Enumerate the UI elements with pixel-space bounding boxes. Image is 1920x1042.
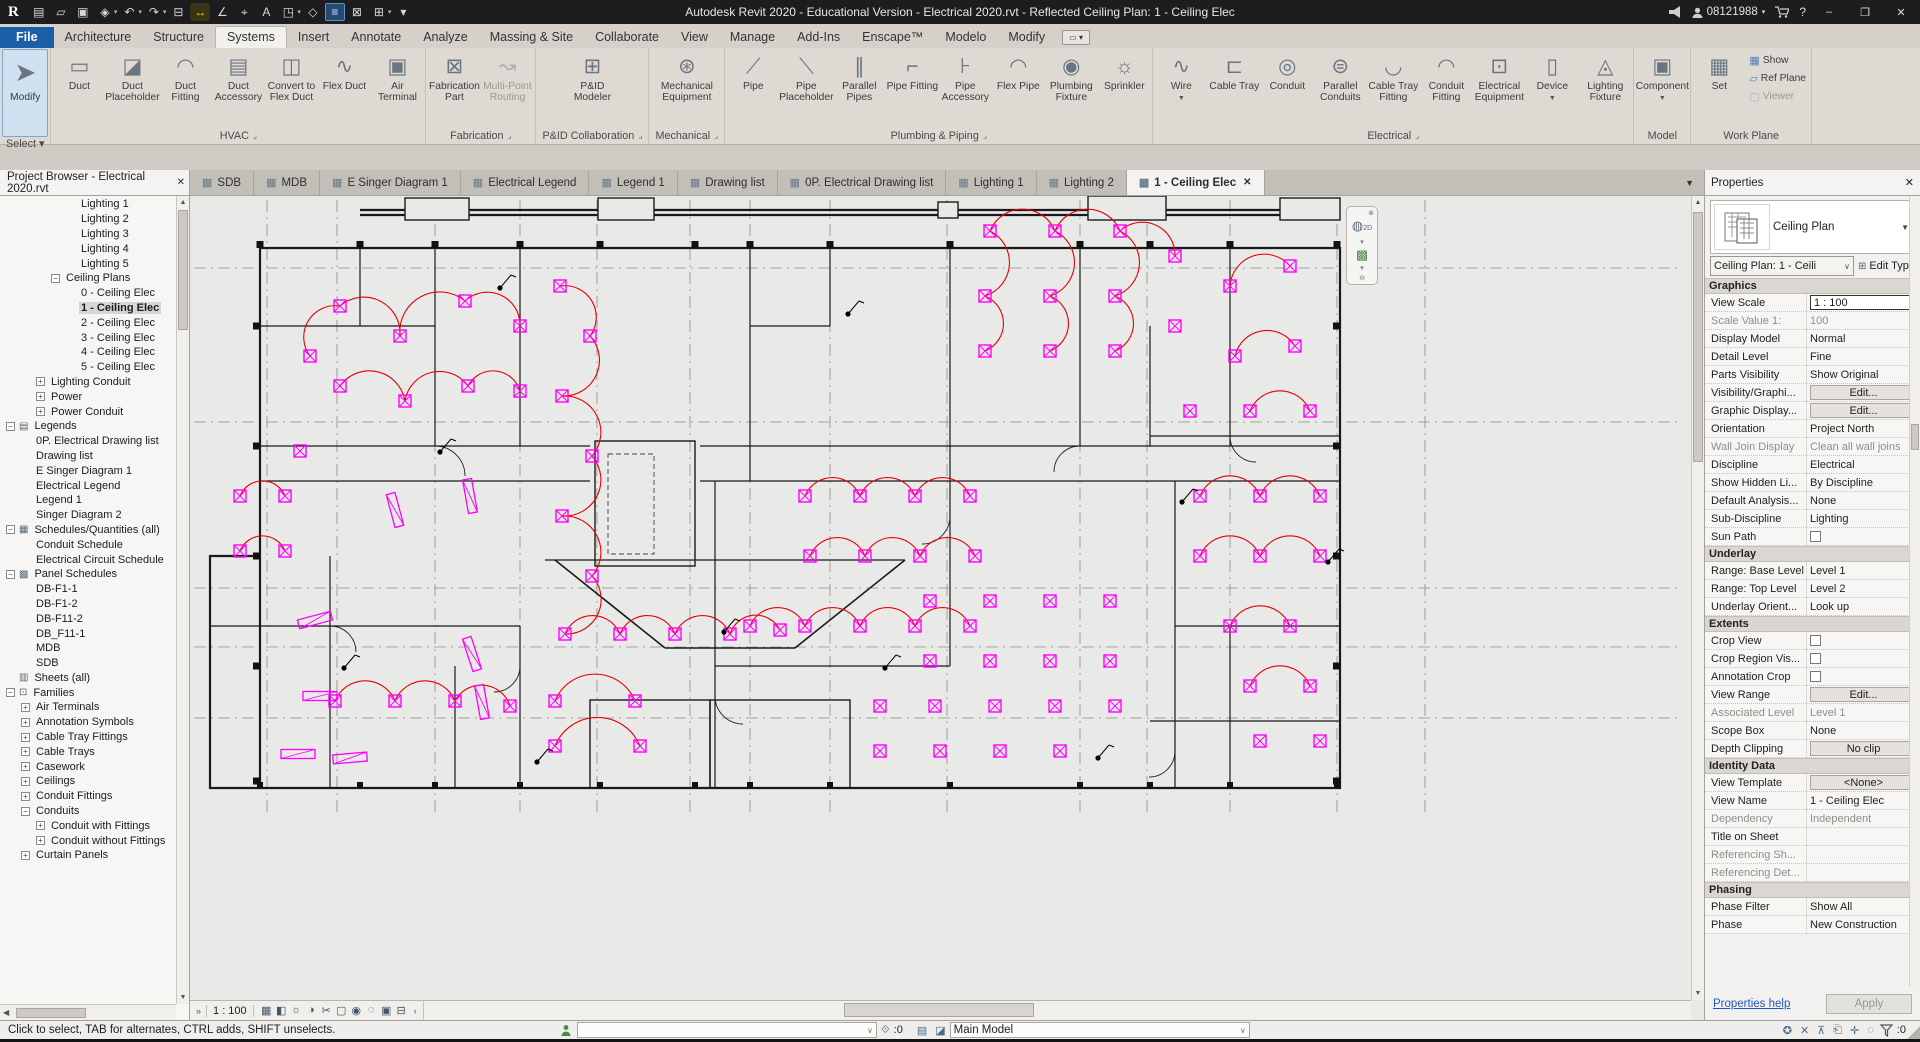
air-terminal-button[interactable]: ▣Air Terminal — [371, 49, 423, 125]
dialog-launcher-icon[interactable]: ⌟ — [508, 130, 512, 141]
render-icon-dropdown[interactable]: ▾ — [114, 8, 118, 16]
property-row-annotation-crop[interactable]: Annotation Crop — [1705, 668, 1920, 686]
duct-button[interactable]: ▭Duct — [53, 49, 105, 125]
ribbon-group-model: ▣Component▼Model — [1634, 48, 1691, 144]
tree-item-curtain-panels[interactable]: +Curtain Panels — [0, 848, 176, 863]
switch-windows-icon[interactable]: ⊞ — [369, 3, 389, 21]
tree-item-mdb[interactable]: MDB — [0, 641, 176, 656]
shadows-icon[interactable]: ◑ — [304, 1004, 319, 1017]
device-button[interactable]: ▯Device▼ — [1526, 49, 1578, 125]
tree-item-panel-schedules[interactable]: −▩Panel Schedules — [0, 567, 176, 582]
expand-icon[interactable]: + — [21, 762, 30, 771]
default-3d-view-icon[interactable]: ◳ — [278, 3, 298, 21]
collapse-icon[interactable]: − — [51, 274, 60, 283]
pipe-icon: ⟋ — [738, 51, 768, 81]
flex-pipe-icon: ◠ — [1003, 51, 1033, 81]
pipe-placeholder-button[interactable]: ⟍Pipe Placeholder — [780, 49, 832, 125]
tree-item-4-ceiling-elec[interactable]: 4 - Ceiling Elec — [0, 345, 176, 360]
plumbing-fixture-button[interactable]: ◉Plumbing Fixture — [1045, 49, 1097, 125]
value-button[interactable]: <None> — [1810, 775, 1917, 790]
property-row-title-on-sheet[interactable]: Title on Sheet — [1705, 828, 1920, 846]
exchange-cart-icon[interactable] — [1775, 6, 1789, 18]
project-browser-close-icon[interactable]: ✕ — [177, 177, 185, 188]
view-tab-e-singer-diagram-1[interactable]: ▦E Singer Diagram 1 — [320, 170, 461, 195]
expand-icon[interactable]: + — [21, 703, 30, 712]
ribbon-group-label: Mechanical — [655, 130, 710, 142]
revit-logo[interactable]: R — [0, 4, 25, 21]
print-icon[interactable]: ⊟ — [168, 3, 188, 21]
project-browser-vscrollbar[interactable]: ▲ ▼ — [176, 196, 189, 1004]
tree-item-db-f1-2[interactable]: DB-F1-2 — [0, 597, 176, 612]
tree-item-cable-tray-fittings[interactable]: +Cable Tray Fittings — [0, 730, 176, 745]
tree-item-conduit-schedule[interactable]: Conduit Schedule — [0, 537, 176, 552]
tree-item-2-ceiling-elec[interactable]: 2 - Ceiling Elec — [0, 315, 176, 330]
expand-icon[interactable]: + — [21, 792, 30, 801]
default-3d-view-icon-dropdown[interactable]: ▾ — [297, 8, 301, 16]
tree-item-db-f1-1[interactable]: DB-F1-1 — [0, 582, 176, 597]
view-tab-1-ceiling-elec[interactable]: ▦1 - Ceiling Elec✕ — [1127, 170, 1265, 195]
tree-item-e-singer-diagram-1[interactable]: E Singer Diagram 1 — [0, 463, 176, 478]
cable-tray-button[interactable]: ⊏Cable Tray — [1208, 49, 1260, 125]
properties-help-link[interactable]: Properties help — [1713, 998, 1790, 1010]
property-row-depth-clipping[interactable]: Depth ClippingNo clip — [1705, 740, 1920, 758]
ribbon-group-label: Electrical — [1367, 130, 1411, 142]
property-row-referencing-sh[interactable]: Referencing Sh... — [1705, 846, 1920, 864]
pipe-button[interactable]: ⟋Pipe — [727, 49, 779, 125]
parallel-pipes-button[interactable]: ∥Parallel Pipes — [833, 49, 885, 125]
ribbon-gap — [0, 145, 1920, 170]
properties-rows: Graphics«View Scale1 : 100Scale Value 1:… — [1705, 278, 1920, 934]
maximize-button[interactable]: ❐ — [1852, 6, 1878, 19]
constraints-icon[interactable]: ⊟ — [394, 1004, 409, 1017]
editable-count: :0 — [894, 1024, 903, 1036]
background-process-icon[interactable]: ◌ — [1863, 1024, 1878, 1036]
steering-wheel-caret[interactable]: ▾ — [1360, 238, 1364, 246]
navbar-collapse-icon[interactable]: ⊖ — [1359, 274, 1365, 282]
property-row-graphic-display[interactable]: Graphic Display...Edit... — [1705, 402, 1920, 420]
tree-item-electrical-legend[interactable]: Electrical Legend — [0, 478, 176, 493]
expand-icon[interactable]: » — [196, 1006, 201, 1016]
ribbon-tab-systems[interactable]: Systems — [215, 26, 287, 48]
dialog-launcher-icon[interactable]: ⌟ — [714, 130, 718, 141]
canvas-hscrollbar[interactable] — [423, 1001, 1691, 1020]
zoom-caret[interactable]: ▾ — [1360, 264, 1364, 272]
thin-lines-icon[interactable]: ≡ — [325, 3, 345, 21]
view-scale-control[interactable]: 1 : 100 — [206, 1005, 254, 1017]
conduit-button[interactable]: ◎Conduit — [1261, 49, 1313, 125]
steering-wheel-icon[interactable]: ◍2D — [1352, 219, 1372, 236]
tree-item-schedules-quantities-all-[interactable]: −▦Schedules/Quantities (all) — [0, 523, 176, 538]
expand-icon[interactable]: + — [21, 747, 30, 756]
tree-item-power-conduit[interactable]: +Power Conduit — [0, 404, 176, 419]
set-work-plane-icon: ▦ — [1704, 51, 1734, 81]
tree-item-5-ceiling-elec[interactable]: 5 - Ceiling Elec — [0, 360, 176, 375]
close-button[interactable]: ✕ — [1888, 6, 1914, 19]
section-icon[interactable]: ◇ — [303, 3, 323, 21]
schedule-icon: ▦ — [19, 524, 28, 535]
status-bar: Click to select, TAB for alternates, CTR… — [0, 1020, 1920, 1039]
ribbon: ➤ModifySelect ▾▭Duct◪Duct Placeholder◠Du… — [0, 48, 1920, 145]
tree-item-cable-trays[interactable]: +Cable Trays — [0, 744, 176, 759]
tree-item-lighting-5[interactable]: Lighting 5 — [0, 256, 176, 271]
property-row-view-scale[interactable]: View Scale1 : 100 — [1705, 294, 1920, 312]
flex-pipe-button[interactable]: ◠Flex Pipe — [992, 49, 1044, 125]
reveal-hidden-icon[interactable]: ◌ — [364, 1004, 379, 1017]
expand-icon[interactable]: + — [21, 718, 30, 727]
canvas-vscrollbar[interactable]: ▲ ▼ — [1691, 196, 1704, 1000]
property-row-display-model[interactable]: Display ModelNormal — [1705, 330, 1920, 348]
ribbon-tab-collaborate[interactable]: Collaborate — [584, 27, 670, 48]
property-row-crop-region-vis[interactable]: Crop Region Vis... — [1705, 650, 1920, 668]
detail-level-icon[interactable]: ▦ — [259, 1004, 274, 1017]
view-tab-legend-1[interactable]: ▦Legend 1 — [589, 170, 677, 195]
section-header-identity-data[interactable]: Identity Data« — [1705, 758, 1920, 774]
tree-item-conduit-without-fittings[interactable]: +Conduit without Fittings — [0, 833, 176, 848]
expand-icon[interactable]: + — [21, 733, 30, 742]
tree-item-ceilings[interactable]: +Ceilings — [0, 774, 176, 789]
redo-icon[interactable]: ↷ — [144, 3, 164, 21]
expand-icon[interactable]: + — [36, 836, 45, 845]
wire-button[interactable]: ∿Wire▼ — [1155, 49, 1207, 125]
render-icon[interactable]: ◈ — [95, 3, 115, 21]
value-button[interactable]: Edit... — [1810, 687, 1917, 702]
save-icon[interactable]: ▣ — [73, 3, 93, 21]
undo-icon[interactable]: ↶ — [119, 3, 139, 21]
tree-item-lighting-3[interactable]: Lighting 3 — [0, 227, 176, 242]
tab-list-button[interactable]: ▼ — [1675, 170, 1704, 195]
ribbon-tab-file[interactable]: File — [0, 27, 54, 48]
set-work-plane-button[interactable]: ▦Set — [1693, 49, 1745, 125]
duct-placeholder-button[interactable]: ◪Duct Placeholder — [106, 49, 158, 125]
property-row-scale-value-1[interactable]: Scale Value 1:100 — [1705, 312, 1920, 330]
ribbon-group-p-id-collaboration: ⊞P&ID ModelerP&ID Collaboration⌟ — [536, 48, 649, 144]
ribbon-tab-modelo[interactable]: Modelo — [934, 27, 997, 48]
tree-item-0p-electrical-drawing-list[interactable]: 0P. Electrical Drawing list — [0, 434, 176, 449]
temporary-view-icon[interactable]: ▣ — [379, 1004, 394, 1017]
selection-filter-icon[interactable] — [1880, 1024, 1895, 1037]
component-icon: ▣ — [1647, 51, 1677, 81]
ribbon-tab-add-ins[interactable]: Add-Ins — [786, 27, 851, 48]
redo-icon-dropdown[interactable]: ▾ — [163, 8, 167, 16]
tree-item-singer-diagram-2[interactable]: Singer Diagram 2 — [0, 508, 176, 523]
viewer-button[interactable]: ▢Viewer — [1746, 88, 1809, 105]
plumbing-fixture-icon: ◉ — [1056, 51, 1086, 81]
view-tab-drawing-list[interactable]: ▦Drawing list — [678, 170, 778, 195]
navbar-close-icon[interactable]: ⊗ — [1368, 209, 1377, 217]
open-icon[interactable]: ▱ — [51, 3, 71, 21]
sprinkler-button[interactable]: ☼Sprinkler — [1098, 49, 1150, 125]
property-row-underlay-orient[interactable]: Underlay Orient...Look up — [1705, 598, 1920, 616]
tree-item-legends[interactable]: −▤Legends — [0, 419, 176, 434]
tree-item-air-terminals[interactable]: +Air Terminals — [0, 700, 176, 715]
expand-icon[interactable]: + — [36, 392, 45, 401]
tree-item-power[interactable]: +Power — [0, 389, 176, 404]
tree-item-lighting-2[interactable]: Lighting 2 — [0, 212, 176, 227]
signin-user[interactable]: 08121988▾ — [1692, 6, 1766, 18]
property-row-visibility-graphi[interactable]: Visibility/Graphi...Edit... — [1705, 384, 1920, 402]
ribbon-group-fabrication: ⊠Fabrication Part↝Multi-Point RoutingFab… — [426, 48, 536, 144]
help-menu[interactable]: ? — [1799, 5, 1806, 19]
ribbon-tab-analyze[interactable]: Analyze — [412, 27, 478, 48]
property-row-default-analysis[interactable]: Default Analysis...None — [1705, 492, 1920, 510]
section-header-graphics[interactable]: Graphics« — [1705, 278, 1920, 294]
multi-point-routing-button[interactable]: ↝Multi-Point Routing — [481, 49, 533, 125]
section-header-extents[interactable]: Extents« — [1705, 616, 1920, 632]
project-browser-hscrollbar[interactable]: ◀ — [0, 1004, 176, 1020]
view-tab-bar: ▦SDB▦MDB▦E Singer Diagram 1▦Electrical L… — [190, 170, 1704, 195]
tree-item-3-ceiling-elec[interactable]: 3 - Ceiling Elec — [0, 330, 176, 345]
conduit-icon: ◎ — [1272, 51, 1302, 81]
ribbon-tab-architecture[interactable]: Architecture — [54, 27, 143, 48]
close-hidden-windows-icon[interactable]: ⊠ — [347, 3, 367, 21]
property-row-phase-filter[interactable]: Phase FilterShow All — [1705, 898, 1920, 916]
value-button[interactable]: Edit... — [1810, 403, 1917, 418]
dialog-launcher-icon[interactable]: ⌟ — [253, 130, 257, 141]
worksharing-display-icon[interactable]: ✪ — [1779, 1024, 1796, 1037]
view-tab-icon: ▦ — [473, 176, 483, 189]
properties-panel: Ceiling Plan ▼ Ceiling Plan: 1 - Ceili∨ … — [1704, 196, 1920, 1020]
lighting-fixture-button[interactable]: ◬Lighting Fixture — [1579, 49, 1631, 125]
value-input[interactable]: 1 : 100 — [1810, 295, 1917, 310]
ribbon-tab-view[interactable]: View — [670, 27, 719, 48]
pipe-fitting-button[interactable]: ⌐Pipe Fitting — [886, 49, 938, 125]
mechanical-equipment-button[interactable]: ⊛Mechanical Equipment — [661, 49, 713, 125]
property-row-dependency[interactable]: DependencyIndependent — [1705, 810, 1920, 828]
tree-item-drawing-list[interactable]: Drawing list — [0, 449, 176, 464]
expand-icon[interactable]: + — [36, 821, 45, 830]
tree-item-sdb[interactable]: SDB — [0, 656, 176, 671]
view-tab-icon: ▦ — [958, 176, 968, 189]
electrical-equipment-button[interactable]: ⊡Electrical Equipment — [1473, 49, 1525, 125]
wire-icon: ∿ — [1166, 51, 1196, 81]
property-row-range-base-level[interactable]: Range: Base LevelLevel 1 — [1705, 562, 1920, 580]
view-tab-icon: ▦ — [332, 176, 342, 189]
type-combo[interactable]: Ceiling Plan: 1 - Ceili∨ — [1710, 256, 1854, 276]
type-label: Ceiling Plan — [1773, 221, 1896, 233]
duct-fitting-icon: ◠ — [170, 51, 200, 81]
expand-icon[interactable]: + — [21, 851, 30, 860]
property-row-wall-join-display[interactable]: Wall Join DisplayClean all wall joins — [1705, 438, 1920, 456]
ribbon-group-plumbing-piping: ⟋Pipe⟍Pipe Placeholder∥Parallel Pipes⌐Pi… — [725, 48, 1153, 144]
status-right-icons: ✪✕⊼⎗✛◌ — [1779, 1024, 1878, 1037]
view-tab-close-icon[interactable]: ✕ — [1243, 177, 1251, 188]
flex-duct-icon: ∿ — [329, 51, 359, 81]
hide-isolate-icon[interactable]: ◉ — [349, 1004, 364, 1017]
fabrication-part-button[interactable]: ⊠Fabrication Part — [428, 49, 480, 125]
ref-plane-icon: ▱ — [1749, 72, 1757, 85]
property-row-show-hidden-li[interactable]: Show Hidden Li...By Discipline — [1705, 474, 1920, 492]
tree-item-lighting-4[interactable]: Lighting 4 — [0, 241, 176, 256]
apply-button[interactable]: Apply — [1826, 994, 1912, 1014]
expand-icon[interactable]: + — [36, 377, 45, 386]
value-checkbox[interactable] — [1810, 671, 1821, 682]
view-tab-lighting-1[interactable]: ▦Lighting 1 — [946, 170, 1036, 195]
minimize-button[interactable]: – — [1816, 6, 1842, 18]
sun-path-icon[interactable]: ☼ — [289, 1004, 304, 1017]
section-header-underlay[interactable]: Underlay« — [1705, 546, 1920, 562]
pipe-accessory-button[interactable]: ⊦Pipe Accessory — [939, 49, 991, 125]
ribbon-tab-manage[interactable]: Manage — [719, 27, 786, 48]
tree-item-db-f11-2[interactable]: DB-F11-2 — [0, 611, 176, 626]
drawing-area[interactable]: ⊗ ◍2D ▾ ▩ ▾ ⊖ — [190, 196, 1691, 1000]
ribbon-minimize-button[interactable]: ▭ ▾ — [1062, 30, 1090, 45]
ref-plane-button[interactable]: ▱Ref Plane — [1746, 70, 1809, 87]
duct-placeholder-icon: ◪ — [117, 51, 147, 81]
property-row-orientation[interactable]: OrientationProject North — [1705, 420, 1920, 438]
reveal-constraints-icon[interactable]: ⎗ — [1829, 1024, 1846, 1037]
tree-item-1-ceiling-elec[interactable]: 1 - Ceiling Elec — [0, 301, 176, 316]
crop-view-icon[interactable]: ✂ — [319, 1004, 334, 1017]
exclude-options-icon[interactable]: ✕ — [1796, 1024, 1813, 1037]
editable-only-icon[interactable]: ⟐ — [877, 1024, 894, 1037]
modify-button[interactable]: ➤Modify — [2, 49, 48, 137]
tree-item-lighting-1[interactable]: Lighting 1 — [0, 197, 176, 212]
property-row-view-name[interactable]: View Name1 - Ceiling Elec — [1705, 792, 1920, 810]
ceiling-plan-drawing[interactable] — [190, 196, 1691, 1000]
cable-tray-fitting-button[interactable]: ◡Cable Tray Fitting — [1367, 49, 1419, 125]
collapse-icon[interactable]: ‹ — [414, 1006, 417, 1016]
duct-accessory-button[interactable]: ▤Duct Accessory — [212, 49, 264, 125]
view-tab-0p-electrical-drawing-list[interactable]: ▦0P. Electrical Drawing list — [778, 170, 947, 195]
property-row-range-top-level[interactable]: Range: Top LevelLevel 2 — [1705, 580, 1920, 598]
zoom-icon[interactable]: ▩ — [1356, 248, 1368, 262]
duct-fitting-button[interactable]: ◠Duct Fitting — [159, 49, 211, 125]
property-row-phase[interactable]: PhaseNew Construction — [1705, 916, 1920, 934]
value-button[interactable]: No clip — [1810, 741, 1917, 756]
dialog-launcher-icon[interactable]: ⌟ — [1415, 130, 1419, 141]
property-row-associated-level[interactable]: Associated LevelLevel 1 — [1705, 704, 1920, 722]
property-row-parts-visibility[interactable]: Parts VisibilityShow Original — [1705, 366, 1920, 384]
pin-icon[interactable]: ⊼ — [1813, 1024, 1829, 1037]
worksets-combo[interactable]: ∨ — [577, 1022, 877, 1038]
tree-item-annotation-symbols[interactable]: +Annotation Symbols — [0, 715, 176, 730]
tree-item-db-f11-1[interactable]: DB_F11-1 — [0, 626, 176, 641]
design-options-combo[interactable]: Main Model∨ — [950, 1022, 1250, 1038]
crop-region-icon[interactable]: ▢ — [334, 1004, 349, 1017]
component-button[interactable]: ▣Component▼ — [1636, 49, 1688, 125]
collapse-icon[interactable]: − — [6, 525, 15, 534]
dialog-launcher-icon[interactable]: ⌟ — [983, 130, 987, 141]
view-tab-icon: ▦ — [601, 176, 611, 189]
ribbon-tab-massing-site[interactable]: Massing & Site — [479, 27, 584, 48]
dialog-launcher-icon[interactable]: ⌟ — [638, 130, 642, 141]
property-row-sub-discipline[interactable]: Sub-DisciplineLighting — [1705, 510, 1920, 528]
collapse-icon[interactable]: − — [6, 570, 15, 579]
ribbon-tab-structure[interactable]: Structure — [142, 27, 215, 48]
tree-item-ceiling-plans[interactable]: −Ceiling Plans — [0, 271, 176, 286]
view-tab-electrical-legend[interactable]: ▦Electrical Legend — [461, 170, 590, 195]
value-button[interactable]: Edit... — [1810, 385, 1917, 400]
tree-item-conduit-fittings[interactable]: +Conduit Fittings — [0, 789, 176, 804]
tree-item-0-ceiling-elec[interactable]: 0 - Ceiling Elec — [0, 286, 176, 301]
tree-item-sheets-all-[interactable]: ▥Sheets (all) — [0, 671, 176, 686]
section-header-phasing[interactable]: Phasing« — [1705, 882, 1920, 898]
ribbon-tab-insert[interactable]: Insert — [287, 27, 340, 48]
view-control-bar: » 1 : 100 ▦◧☼◑✂▢◉◌▣⊟ ‹ — [190, 1004, 423, 1017]
pipe-accessory-icon: ⊦ — [950, 51, 980, 81]
properties-header[interactable]: Properties ✕ — [1704, 170, 1920, 195]
collapse-icon[interactable]: − — [21, 807, 30, 816]
tree-item-legend-1[interactable]: Legend 1 — [0, 493, 176, 508]
device-icon: ▯ — [1537, 51, 1567, 81]
cable-tray-fitting-icon: ◡ — [1378, 51, 1408, 81]
tree-item-conduits[interactable]: −Conduits — [0, 804, 176, 819]
press-drag-icon[interactable]: ✛ — [1846, 1024, 1863, 1037]
value-checkbox[interactable] — [1810, 531, 1821, 542]
expand-icon[interactable]: + — [36, 407, 45, 416]
value-checkbox[interactable] — [1810, 653, 1821, 664]
property-row-view-template[interactable]: View Template<None> — [1705, 774, 1920, 792]
visual-style-icon[interactable]: ◧ — [274, 1004, 289, 1017]
switch-windows-icon-dropdown[interactable]: ▾ — [388, 8, 392, 16]
collapse-icon[interactable]: − — [6, 422, 15, 431]
properties-close-icon[interactable]: ✕ — [1905, 176, 1914, 189]
customize-qat-icon[interactable]: ▾ — [393, 3, 413, 21]
property-row-detail-level[interactable]: Detail LevelFine — [1705, 348, 1920, 366]
tree-item-conduit-with-fittings[interactable]: +Conduit with Fittings — [0, 818, 176, 833]
property-row-discipline[interactable]: DisciplineElectrical — [1705, 456, 1920, 474]
pipe-fitting-icon: ⌐ — [897, 51, 927, 81]
open-documents-icon[interactable]: ▤ — [29, 3, 49, 21]
type-selector[interactable]: Ceiling Plan ▼ — [1710, 200, 1915, 254]
tree-item-lighting-conduit[interactable]: +Lighting Conduit — [0, 375, 176, 390]
family-icon: ⊡ — [19, 687, 27, 698]
flex-duct-button[interactable]: ∿Flex Duct — [318, 49, 370, 125]
property-row-view-range[interactable]: View RangeEdit... — [1705, 686, 1920, 704]
tree-item-electrical-circuit-schedule[interactable]: Electrical Circuit Schedule — [0, 552, 176, 567]
project-browser-header[interactable]: Project Browser - Electrical 2020.rvt ✕ — [0, 170, 190, 195]
expand-icon[interactable]: + — [21, 777, 30, 786]
ribbon-tab-annotate[interactable]: Annotate — [340, 27, 412, 48]
convert-to-flex-duct-button[interactable]: ◫Convert to Flex Duct — [265, 49, 317, 125]
tree-item-families[interactable]: −⊡Families — [0, 685, 176, 700]
parallel-conduits-button[interactable]: ⊜Parallel Conduits — [1314, 49, 1366, 125]
property-row-crop-view[interactable]: Crop View — [1705, 632, 1920, 650]
value-checkbox[interactable] — [1810, 635, 1821, 646]
measure-icon[interactable]: ↔ — [190, 3, 210, 21]
communication-center-icon[interactable] — [1668, 6, 1682, 18]
ribbon-group-label: HVAC — [220, 130, 249, 142]
ribbon-tab-modify[interactable]: Modify — [997, 27, 1056, 48]
view-tab-mdb[interactable]: ▦MDB — [254, 170, 320, 195]
property-row-scope-box[interactable]: Scope BoxNone — [1705, 722, 1920, 740]
undo-icon-dropdown[interactable]: ▾ — [138, 8, 142, 16]
edit-type-button[interactable]: ⊞ Edit Type — [1858, 260, 1915, 272]
show-work-plane-button[interactable]: ▦Show — [1746, 52, 1809, 69]
navigation-bar[interactable]: ⊗ ◍2D ▾ ▩ ▾ ⊖ — [1346, 206, 1378, 285]
aligned-dimension-icon[interactable]: ∠ — [212, 3, 232, 21]
design-options-icon[interactable]: ▤ — [913, 1024, 931, 1037]
sprinkler-icon: ☼ — [1109, 51, 1139, 81]
active-option-icon[interactable]: ◪ — [931, 1024, 949, 1037]
ribbon-tab-enscape-[interactable]: Enscape™ — [851, 27, 934, 48]
properties-vscrollbar[interactable] — [1909, 196, 1920, 986]
ribbon-tab-bar: FileArchitectureStructureSystemsInsertAn… — [0, 24, 1920, 48]
tag-icon[interactable]: ⌖ — [234, 3, 254, 21]
pid-modeler-button[interactable]: ⊞P&ID Modeler — [566, 49, 618, 125]
view-tab-lighting-2[interactable]: ▦Lighting 2 — [1037, 170, 1127, 195]
collapse-icon[interactable]: − — [6, 688, 15, 697]
conduit-fitting-button[interactable]: ◠Conduit Fitting — [1420, 49, 1472, 125]
quick-access-toolbar: ▤▱▣◈▾↶▾↷▾⊟↔∠⌖A◳▾◇≡⊠⊞▾▾ — [25, 3, 414, 21]
view-tab-sdb[interactable]: ▦SDB — [190, 170, 254, 195]
resize-grip[interactable] — [1906, 1021, 1920, 1039]
ribbon-group-label: Model — [1648, 130, 1677, 142]
property-row-sun-path[interactable]: Sun Path — [1705, 528, 1920, 546]
text-icon[interactable]: A — [256, 3, 276, 21]
tree-item-casework[interactable]: +Casework — [0, 759, 176, 774]
property-row-referencing-det[interactable]: Referencing Det... — [1705, 864, 1920, 882]
